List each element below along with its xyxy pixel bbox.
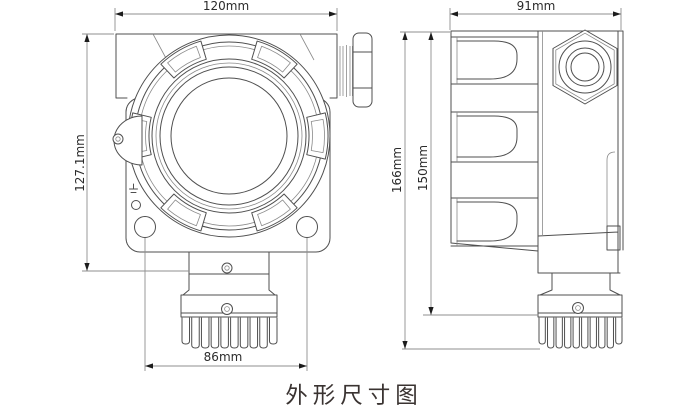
- locking-screw: [113, 134, 123, 144]
- dim-front-height-label: 127.1mm: [73, 134, 87, 192]
- sensor-cap-ribs: [182, 318, 277, 348]
- dim-side-body-height-label: 150mm: [416, 145, 430, 191]
- cable-gland-nut: [353, 33, 372, 107]
- bezel-outer-ring: [128, 35, 330, 237]
- side-view: [451, 30, 623, 348]
- cable-gland-thread: [340, 45, 353, 97]
- dim-side-total-height-label: 166mm: [390, 147, 404, 193]
- dim-side-total-height: 166mm: [390, 32, 540, 349]
- outline-dimension-drawing: 120mm 127.1mm 86mm 91mm 166mm 150mm 外形尺寸…: [0, 0, 700, 412]
- dimension-drawing-svg: 120mm 127.1mm 86mm 91mm 166mm 150mm 外形尺寸…: [0, 0, 700, 412]
- side-sensor-neck: [540, 273, 620, 295]
- side-cap-ribs: [539, 318, 622, 348]
- dim-front-width: 120mm: [115, 0, 337, 31]
- side-cap-set-screw: [573, 303, 584, 314]
- neck-set-screw: [222, 263, 232, 273]
- dim-side-width: 91mm: [450, 0, 621, 30]
- dim-front-width-label: 120mm: [203, 0, 249, 13]
- front-view: [113, 33, 372, 348]
- dim-side-body-height: 150mm: [416, 32, 538, 315]
- side-grip-tabs: [451, 37, 538, 246]
- sensor-neck: [183, 252, 275, 295]
- dim-hole-spacing-label: 86mm: [204, 350, 243, 364]
- cap-set-screw: [222, 304, 233, 315]
- drawing-title: 外形尺寸图: [285, 383, 423, 409]
- dim-side-width-label: 91mm: [517, 0, 556, 13]
